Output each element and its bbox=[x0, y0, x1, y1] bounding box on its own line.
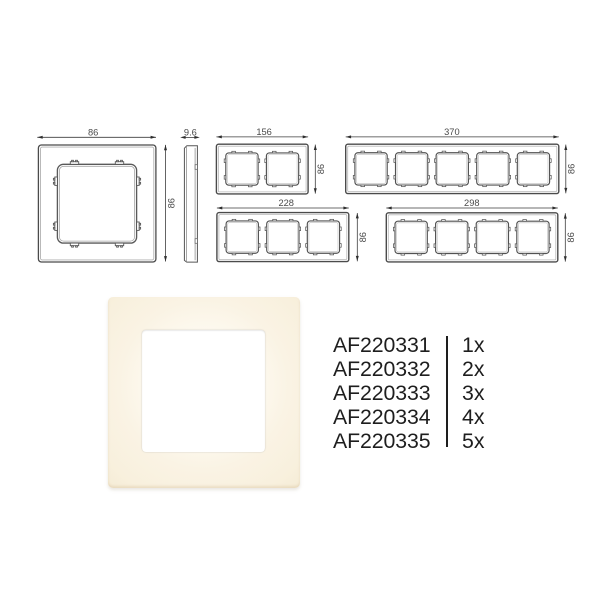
svg-text:86: 86 bbox=[316, 164, 326, 174]
svg-text:228: 228 bbox=[278, 198, 294, 208]
svg-text:86: 86 bbox=[88, 127, 98, 137]
svg-text:86: 86 bbox=[358, 232, 368, 242]
svg-text:86: 86 bbox=[166, 198, 176, 208]
svg-text:156: 156 bbox=[256, 127, 272, 137]
svg-text:370: 370 bbox=[444, 127, 460, 137]
svg-text:9.6: 9.6 bbox=[184, 127, 197, 137]
svg-text:298: 298 bbox=[464, 198, 480, 208]
svg-text:86: 86 bbox=[567, 164, 577, 174]
svg-text:86: 86 bbox=[566, 232, 576, 242]
